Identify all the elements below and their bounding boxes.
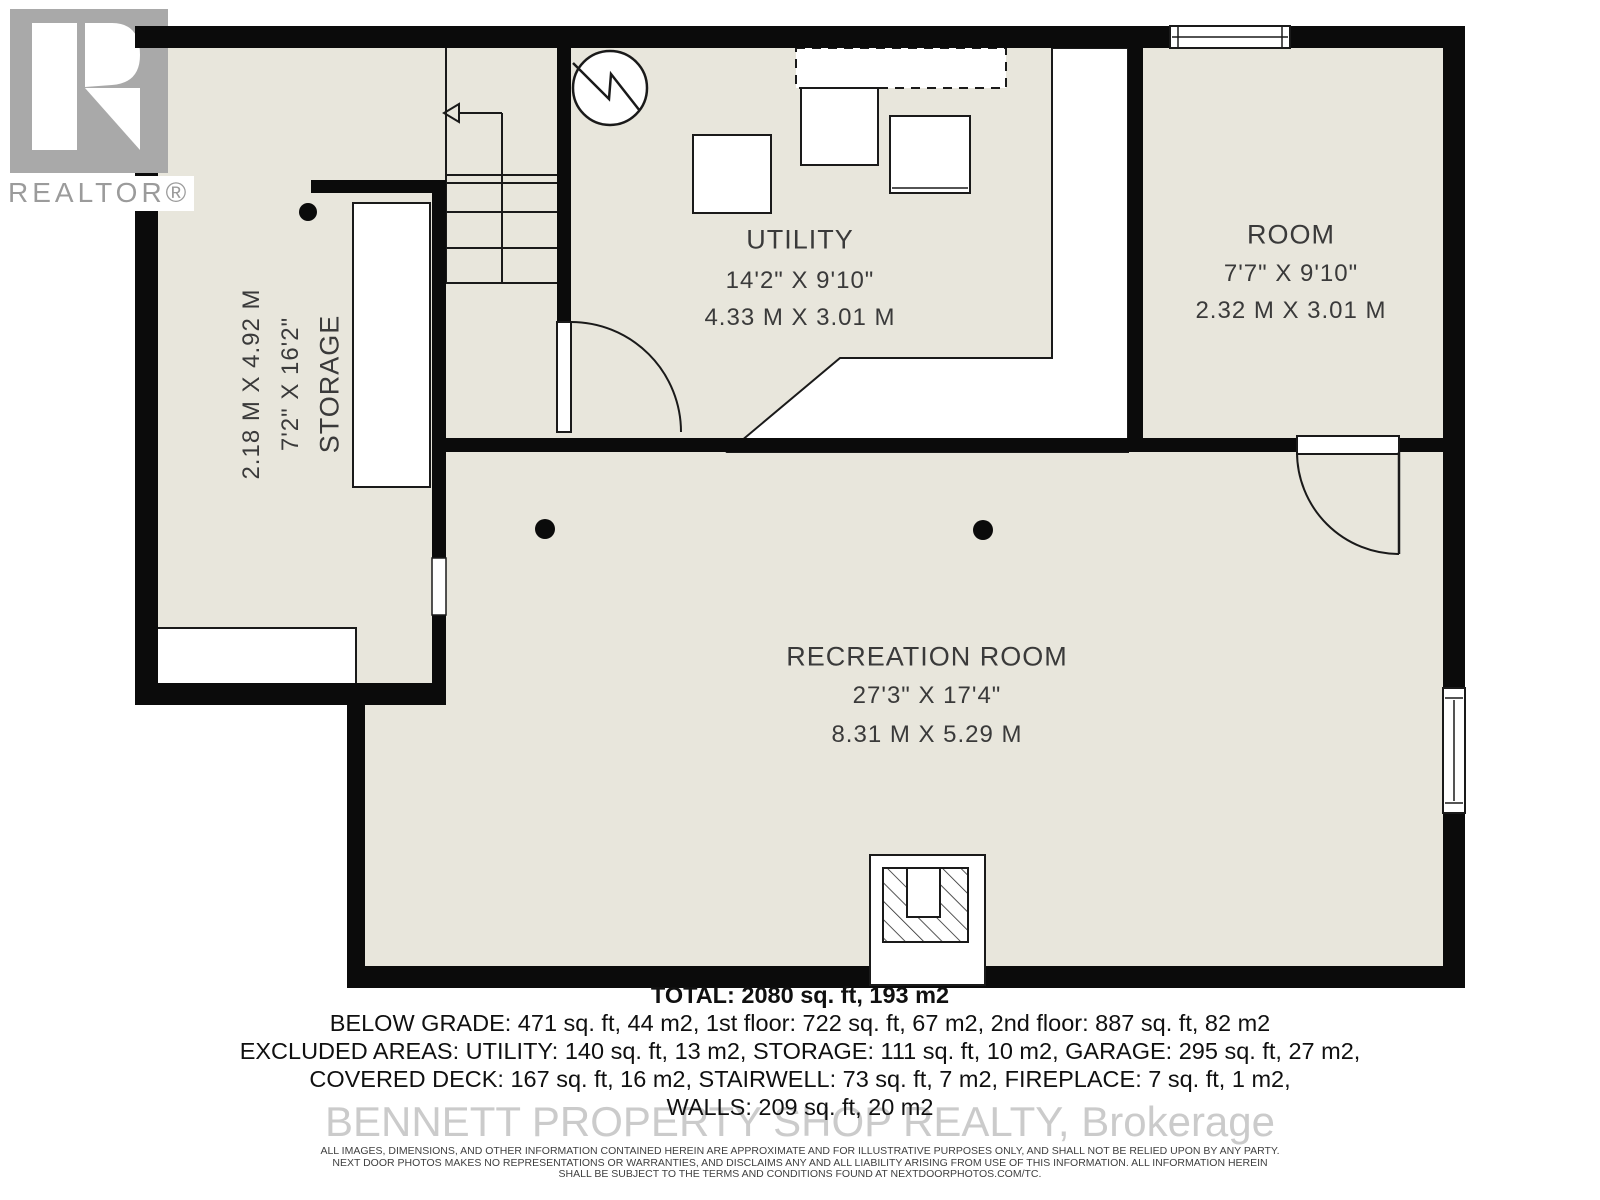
utility-label: UTILITY [746,225,854,256]
support-post-dot [973,520,993,540]
wall-storage-east-lower [432,613,446,705]
appliance-box-3 [890,116,970,193]
floor-area [140,30,1460,985]
summary-total: TOTAL: 2080 sq. ft, 193 m2 [0,982,1600,1009]
utility-door-leaf [557,322,571,432]
storage-label: STORAGE [315,315,346,454]
wall-recreation-left [347,683,365,988]
recreation-label: RECREATION ROOM [786,642,1068,673]
storage-dim-imperial: 7'2" X 16'2" [277,317,305,451]
storage-dim-metric: 2.18 M X 4.92 M [238,288,266,479]
appliance-box-2 [801,88,878,165]
storage-shelf [353,203,430,487]
wall-right [1443,26,1465,988]
recreation-dim-metric: 8.31 M X 5.29 M [831,721,1022,749]
disclaimer: ALL IMAGES, DIMENSIONS, AND OTHER INFORM… [0,1146,1600,1181]
room-dim-imperial: 7'7" X 9'10" [1224,260,1358,288]
summary-excluded-1: EXCLUDED AREAS: UTILITY: 140 sq. ft, 13 … [0,1038,1600,1065]
wall-storage-bottom [135,683,446,705]
disclaimer-line-3: SHALL BE SUBJECT TO THE TERMS AND CONDIT… [0,1169,1600,1181]
utility-dim-imperial: 14'2" X 9'10" [726,267,875,295]
storage-opening [156,628,356,685]
summary-below-grade: BELOW GRADE: 471 sq. ft, 44 m2, 1st floo… [0,1010,1600,1037]
room-dim-metric: 2.32 M X 3.01 M [1195,297,1386,325]
realtor-wordmark: REALTOR® [6,176,194,211]
floorplan-page: UTILITY 14'2" X 9'10" 4.33 M X 3.01 M RO… [0,0,1600,1200]
summary-excluded-2: COVERED DECK: 167 sq. ft, 16 m2, STAIRWE… [0,1066,1600,1093]
utility-dim-metric: 4.33 M X 3.01 M [704,304,895,332]
support-post-dot [535,519,555,539]
recreation-dim-imperial: 27'3" X 17'4" [853,682,1002,710]
room-door-opening [1297,436,1399,454]
wall-stair-east [557,44,571,322]
wall-mid-horizontal [446,438,1297,452]
room-label: ROOM [1247,220,1335,251]
wall-mid-horizontal-right [1399,438,1443,452]
wall-storage-east-upper [432,184,446,560]
summary-walls: WALLS: 209 sq. ft, 20 m2 [0,1094,1600,1121]
appliance-box-1 [693,135,771,213]
overhead-dashed-fixture [796,48,1006,88]
disclaimer-line-1: ALL IMAGES, DIMENSIONS, AND OTHER INFORM… [0,1146,1600,1158]
storage-door-opening [432,558,446,615]
fireplace [870,855,985,985]
wall-storage-stub [311,180,446,193]
wall-room-divider [1128,44,1143,452]
firebox [907,868,940,917]
support-post-dot [299,203,317,221]
